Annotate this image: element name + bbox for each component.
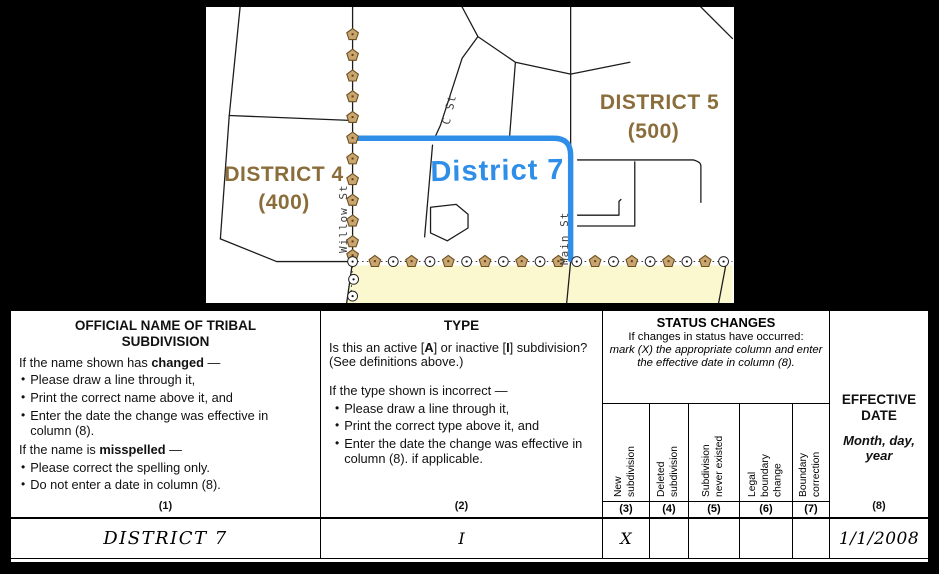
col1-official-name-header: OFFICIAL NAME OF TRIBAL SUBDIVISION If t… (11, 311, 321, 519)
status-col-legal-boundary-change: Legal boundary change (740, 404, 793, 501)
status-col5-number: (5) (689, 501, 740, 519)
col2-bullet: Please draw a line through it, (329, 402, 594, 417)
road-east-parcel-top (578, 160, 701, 202)
district7-handwritten-label: District 7 (425, 154, 571, 190)
entry-mark-deleted-subdivision (650, 519, 689, 559)
col1-changed-intro: If the name shown has changed — (19, 356, 312, 371)
district4-name-label: DISTRICT 4 (224, 163, 344, 186)
road-northeast-diagonal (701, 7, 733, 39)
col2-bullet: Enter the date the change was effective … (329, 437, 594, 467)
col1-bullet: Print the correct name above it, and (19, 391, 312, 406)
main-st-label: Main St (558, 195, 571, 265)
status-changes-header: STATUS CHANGES If changes in status have… (603, 311, 829, 404)
status-intro: If changes in status have occurred: (607, 331, 825, 344)
exterior-area-shading (346, 266, 733, 303)
entry-mark-new-subdivision: X (603, 519, 650, 559)
parcel-outline (431, 204, 468, 241)
col2-incorrect-intro: If the type shown is incorrect — (329, 384, 594, 399)
col2-question: Is this an active [A] or inactive [I] su… (329, 341, 594, 371)
status-col-boundary-correction: Boundary correction (793, 404, 829, 501)
col8-subtitle: Month, day, year (839, 433, 919, 463)
status-col6-number: (6) (740, 501, 793, 519)
tribal-subdivision-form-table: OFFICIAL NAME OF TRIBAL SUBDIVISION If t… (8, 308, 931, 565)
col1-bullet: Enter the date the change was effective … (19, 409, 312, 439)
col1-bullet: Please correct the spelling only. (19, 461, 312, 476)
entry-mark-never-existed (689, 519, 740, 559)
col8-number: (8) (872, 498, 885, 514)
col2-number: (2) (329, 498, 594, 514)
road-west-cross (229, 116, 352, 121)
status-col-deleted-subdivision: Deleted subdivision (650, 404, 689, 501)
col1-bullet: Do not enter a date in column (8). (19, 478, 312, 493)
district5-name-label: DISTRICT 5 (597, 91, 722, 114)
district4-code-label: (400) (224, 191, 344, 214)
status-title: STATUS CHANGES (607, 315, 825, 330)
willow-st-label: Willow St (337, 165, 350, 253)
col2-title: TYPE (444, 318, 479, 334)
entry-mark-boundary-correction (793, 519, 830, 559)
district5-code-label: (500) (591, 120, 716, 143)
status-col-never-existed: Subdivision never existed (689, 404, 740, 501)
col2-bullet: Print the correct type above it, and (329, 419, 594, 434)
entry-effective-date: 1/1/2008 (830, 519, 928, 559)
col1-title: OFFICIAL NAME OF TRIBAL SUBDIVISION (41, 318, 291, 349)
col1-number: (1) (19, 498, 312, 514)
status-col3-number: (3) (603, 501, 650, 519)
col1-bullet: Please draw a line through it, (19, 373, 312, 388)
road-east-parcel-side (578, 162, 635, 226)
status-changes-group: STATUS CHANGES If changes in status have… (603, 311, 830, 519)
status-col4-number: (4) (650, 501, 689, 519)
col2-type-header: TYPE Is this an active [A] or inactive [… (321, 311, 603, 519)
entry-subdivision-name: DISTRICT 7 (11, 519, 321, 559)
entry-mark-legal-boundary-change (740, 519, 793, 559)
tribal-subdivision-map: DISTRICT 4 (400) DISTRICT 5 (500) Distri… (203, 4, 737, 306)
road-east-parcel-inner (578, 199, 621, 215)
col8-title: EFFECTIVE DATE (838, 392, 920, 423)
road-southwest (220, 239, 352, 262)
col1-misspelled-intro: If the name is misspelled — (19, 443, 312, 458)
status-col-new-subdivision: New subdivision (603, 404, 650, 501)
status-col7-number: (7) (793, 501, 829, 519)
entry-type: I (321, 519, 603, 559)
status-instruction: mark (X) the appropriate column and ente… (609, 344, 824, 370)
col8-effective-date-header: EFFECTIVE DATE Month, day, year (8) (830, 311, 928, 519)
